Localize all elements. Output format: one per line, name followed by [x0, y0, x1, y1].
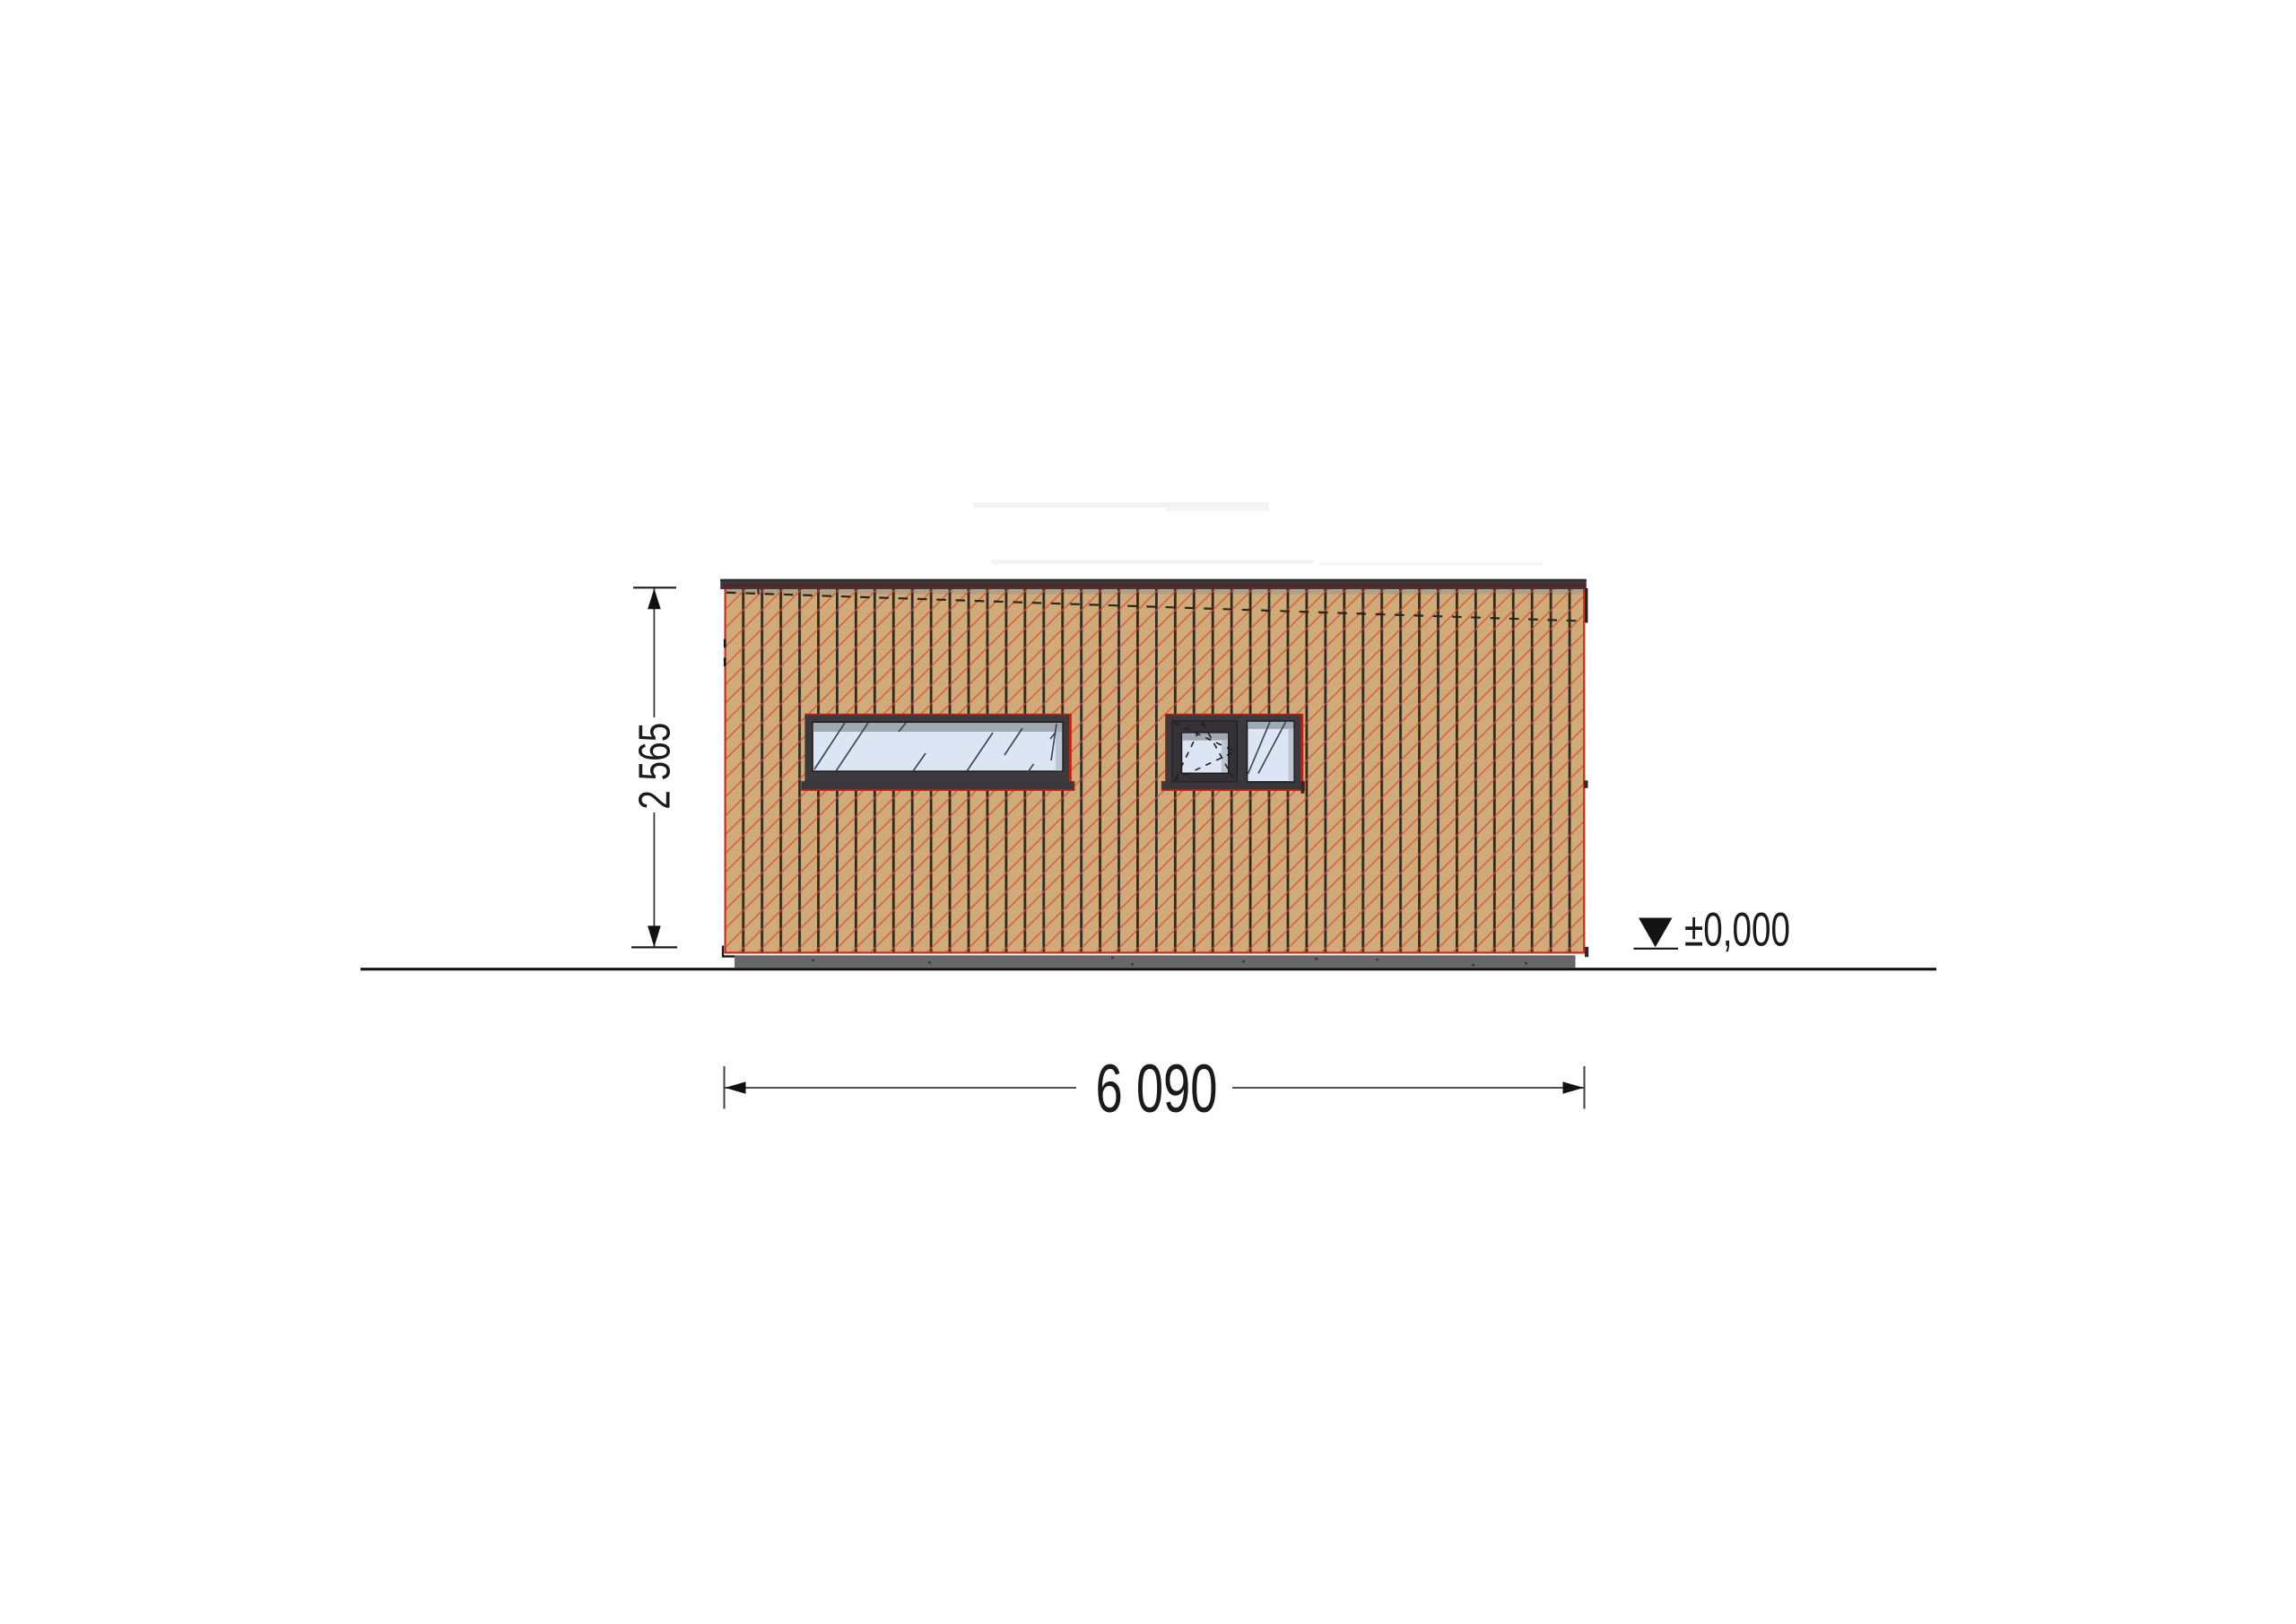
svg-text:2 565: 2 565	[631, 723, 680, 810]
svg-text:6 090: 6 090	[1096, 1051, 1218, 1127]
svg-text:±0,000: ±0,000	[1684, 903, 1790, 956]
